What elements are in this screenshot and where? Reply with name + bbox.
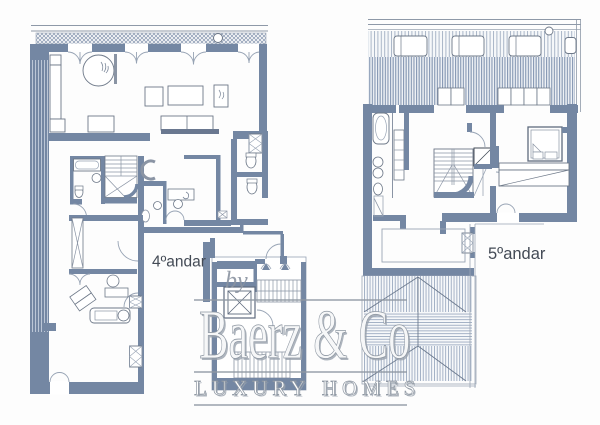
svg-text:by: by [225, 268, 248, 294]
svg-text:5ºandar: 5ºandar [488, 245, 546, 263]
svg-text:4ºandar: 4ºandar [152, 254, 206, 271]
svg-text:LUXURY HOMES: LUXURY HOMES [194, 376, 420, 400]
svg-text:Baerz & Co: Baerz & Co [199, 296, 410, 374]
